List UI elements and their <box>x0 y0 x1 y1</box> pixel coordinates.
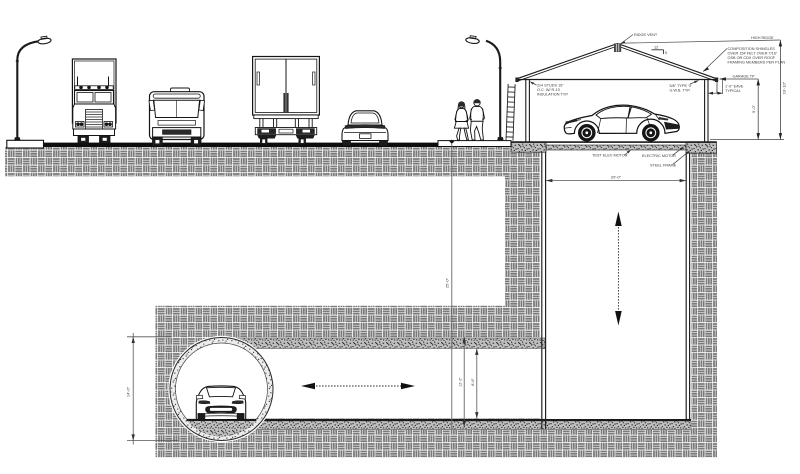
svg-text:INSULATION TYP.: INSULATION TYP. <box>537 93 568 97</box>
svg-text:5/8" TYPE 'X': 5/8" TYPE 'X' <box>670 84 693 88</box>
svg-text:8'-6": 8'-6" <box>471 378 475 386</box>
svg-text:O.C. W/ R-13: O.C. W/ R-13 <box>537 88 560 92</box>
svg-text:G.W.B. TYP.: G.W.B. TYP. <box>670 89 691 93</box>
svg-text:GARAGE TP: GARAGE TP <box>733 75 756 79</box>
svg-text:COMPOSITION SHINGLES: COMPOSITION SHINGLES <box>728 47 776 51</box>
svg-text:12'-2": 12'-2" <box>459 377 463 387</box>
svg-text:TEST ELEV MOTOR: TEST ELEV MOTOR <box>592 154 628 158</box>
svg-text:14'-0": 14'-0" <box>126 386 131 397</box>
svg-text:RIDGE VENT: RIDGE VENT <box>634 33 658 37</box>
svg-text:FRAMING MEMBERS PER PLAN: FRAMING MEMBERS PER PLAN <box>728 61 786 65</box>
svg-text:2x4 STUDS 16": 2x4 STUDS 16" <box>537 83 564 87</box>
svg-text:12: 12 <box>654 46 658 50</box>
svg-text:OSB OR CDX OVER ROOF: OSB OR CDX OVER ROOF <box>728 56 776 60</box>
svg-text:5: 5 <box>665 51 667 55</box>
svg-text:TYPICAL: TYPICAL <box>725 89 741 93</box>
svg-text:1'-0" EAVE: 1'-0" EAVE <box>725 85 744 89</box>
svg-text:STEEL FRAME: STEEL FRAME <box>650 163 677 167</box>
svg-text:HIGH RIDGE: HIGH RIDGE <box>751 36 774 40</box>
svg-text:ELECTRIC MOTOR: ELECTRIC MOTOR <box>642 154 676 158</box>
svg-text:20'-0": 20'-0" <box>611 175 622 180</box>
svg-text:OVER 15# FELT OVER 7/16": OVER 15# FELT OVER 7/16" <box>728 51 778 55</box>
svg-text:9'-0": 9'-0" <box>751 104 756 113</box>
svg-text:25'-0": 25'-0" <box>445 277 450 288</box>
svg-text:19'-10": 19'-10" <box>782 81 787 94</box>
